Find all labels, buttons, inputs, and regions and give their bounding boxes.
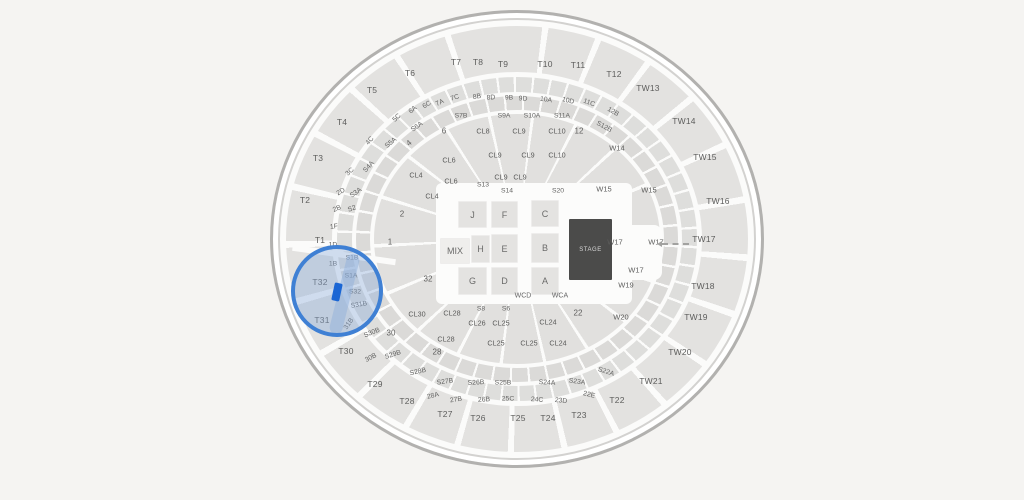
section-cl4[interactable]: CL4: [409, 171, 422, 180]
section-tw16[interactable]: TW16: [706, 196, 729, 206]
section-tw20[interactable]: TW20: [668, 347, 691, 357]
section-22[interactable]: 22: [574, 309, 583, 318]
section-w15[interactable]: W15: [596, 185, 611, 194]
section-s26b[interactable]: S26B: [468, 379, 485, 387]
section-t10[interactable]: T10: [537, 59, 552, 69]
section-w20[interactable]: W20: [613, 313, 628, 322]
floor-section-f[interactable]: F: [491, 201, 518, 228]
section-6[interactable]: 6: [442, 127, 446, 136]
section-s9a[interactable]: S9A: [498, 113, 511, 120]
section-s10a[interactable]: S10A: [524, 113, 541, 120]
section-cl9[interactable]: CL9: [521, 151, 534, 160]
section-tw19[interactable]: TW19: [684, 312, 707, 322]
section-cl9[interactable]: CL9: [494, 173, 507, 182]
floor-section-label: A: [542, 276, 548, 286]
section-tw17[interactable]: TW17: [692, 234, 715, 244]
section-t2[interactable]: T2: [300, 195, 310, 205]
section-s20[interactable]: S20: [552, 188, 564, 195]
section-t1[interactable]: T1: [315, 235, 325, 245]
floor-section-label: E: [501, 244, 507, 254]
floor-section-b[interactable]: B: [531, 233, 559, 263]
section-s7b[interactable]: S7B: [455, 113, 468, 120]
floor-section-label: F: [502, 210, 508, 220]
section-9d[interactable]: 9D: [518, 95, 527, 103]
section-25c[interactable]: 25C: [502, 396, 514, 403]
floor-section-g[interactable]: G: [458, 267, 487, 295]
section-t6[interactable]: T6: [405, 68, 415, 78]
section-w14[interactable]: W14: [609, 144, 624, 153]
section-1[interactable]: 1: [388, 238, 392, 247]
floor-section-label: C: [542, 209, 549, 219]
section-cl6[interactable]: CL6: [444, 177, 457, 186]
floor-section-label: G: [469, 276, 476, 286]
section-23d[interactable]: 23D: [554, 397, 567, 405]
section-tw15[interactable]: TW15: [693, 152, 716, 162]
section-8d[interactable]: 8D: [486, 94, 495, 102]
tunnel-arrow-icon: [662, 243, 689, 245]
section-t12[interactable]: T12: [606, 69, 621, 79]
floor-section-e[interactable]: E: [491, 234, 518, 263]
section-t9[interactable]: T9: [498, 59, 508, 69]
section-w17[interactable]: W17: [607, 238, 622, 247]
section-8b[interactable]: 8B: [472, 93, 481, 101]
section-t28[interactable]: T28: [399, 396, 414, 406]
seatmap: STAGE T1T2T3T4T5T6T7T8T9T10T11T12TW13TW1…: [0, 0, 1024, 500]
section-s24a[interactable]: S24A: [539, 379, 556, 387]
section-cl4[interactable]: CL4: [425, 192, 438, 201]
floor-section-label: D: [501, 276, 508, 286]
section-tw18[interactable]: TW18: [691, 281, 714, 291]
section-s14[interactable]: S14: [501, 188, 513, 195]
section-t23[interactable]: T23: [571, 410, 586, 420]
floor-section-label: B: [542, 243, 548, 253]
section-2[interactable]: 2: [400, 210, 404, 219]
floor-section-label: H: [477, 244, 484, 254]
section-30[interactable]: 30: [387, 329, 396, 338]
section-tw13[interactable]: TW13: [636, 83, 659, 93]
section-s13[interactable]: S13: [477, 182, 489, 189]
section-tw21[interactable]: TW21: [639, 376, 662, 386]
section-t5[interactable]: T5: [367, 85, 377, 95]
section-t26[interactable]: T26: [470, 413, 485, 423]
section-s8[interactable]: S8: [477, 306, 485, 313]
section-cl28[interactable]: CL28: [443, 309, 460, 318]
section-s6[interactable]: S6: [502, 306, 510, 313]
section-cl10[interactable]: CL10: [548, 151, 565, 160]
section-cl9[interactable]: CL9: [513, 173, 526, 182]
floor-section-d[interactable]: D: [491, 267, 518, 295]
section-s25b[interactable]: S25B: [495, 380, 512, 387]
section-t3[interactable]: T3: [313, 153, 323, 163]
floor-section-j[interactable]: J: [458, 201, 487, 228]
section-t22[interactable]: T22: [609, 395, 624, 405]
section-cl9[interactable]: CL9: [512, 127, 525, 136]
floor-section-a[interactable]: A: [531, 267, 559, 295]
section-tw14[interactable]: TW14: [672, 116, 695, 126]
floor-section-label: MIX: [447, 246, 463, 256]
section-cl24[interactable]: CL24: [539, 318, 556, 327]
floor-section-mix[interactable]: MIX: [440, 238, 470, 264]
section-wca[interactable]: WCA: [552, 293, 568, 300]
section-t29[interactable]: T29: [367, 379, 382, 389]
section-cl9[interactable]: CL9: [488, 151, 501, 160]
section-w15[interactable]: W15: [641, 186, 656, 195]
section-t25[interactable]: T25: [510, 413, 525, 423]
floor-section-label: J: [470, 210, 475, 220]
section-24c[interactable]: 24C: [531, 396, 544, 404]
section-t11[interactable]: T11: [571, 60, 586, 70]
section-t8[interactable]: T8: [473, 57, 483, 67]
section-cl26[interactable]: CL26: [468, 319, 485, 328]
section-32[interactable]: 32: [424, 275, 433, 284]
section-t27[interactable]: T27: [437, 409, 452, 419]
section-w17[interactable]: W17: [628, 266, 643, 275]
section-cl8[interactable]: CL8: [476, 127, 489, 136]
section-cl25[interactable]: CL25: [487, 339, 504, 348]
section-t24[interactable]: T24: [540, 413, 555, 423]
section-s11a[interactable]: S11A: [554, 113, 570, 120]
section-9b[interactable]: 9B: [505, 95, 513, 102]
section-t30[interactable]: T30: [338, 346, 353, 356]
section-cl24[interactable]: CL24: [549, 339, 566, 348]
section-cl25[interactable]: CL25: [492, 319, 509, 328]
stage-label: STAGE: [579, 247, 601, 253]
section-28[interactable]: 28: [433, 348, 442, 357]
section-cl28[interactable]: CL28: [437, 335, 454, 344]
floor-section-c[interactable]: C: [531, 200, 559, 227]
section-10a[interactable]: 10A: [540, 96, 553, 105]
section-1f[interactable]: 1F: [330, 223, 339, 231]
section-cl6[interactable]: CL6: [442, 156, 455, 165]
section-cl30[interactable]: CL30: [408, 310, 425, 319]
stage: STAGE: [569, 219, 612, 280]
section-t7[interactable]: T7: [451, 57, 461, 67]
section-w19[interactable]: W19: [618, 281, 633, 290]
floor-section-h[interactable]: H: [471, 235, 490, 263]
section-t4[interactable]: T4: [337, 117, 347, 127]
section-cl25[interactable]: CL25: [520, 339, 537, 348]
section-26b[interactable]: 26B: [478, 396, 490, 404]
section-cl10[interactable]: CL10: [548, 127, 565, 136]
section-wcd[interactable]: WCD: [515, 293, 532, 300]
section-12[interactable]: 12: [575, 127, 584, 136]
